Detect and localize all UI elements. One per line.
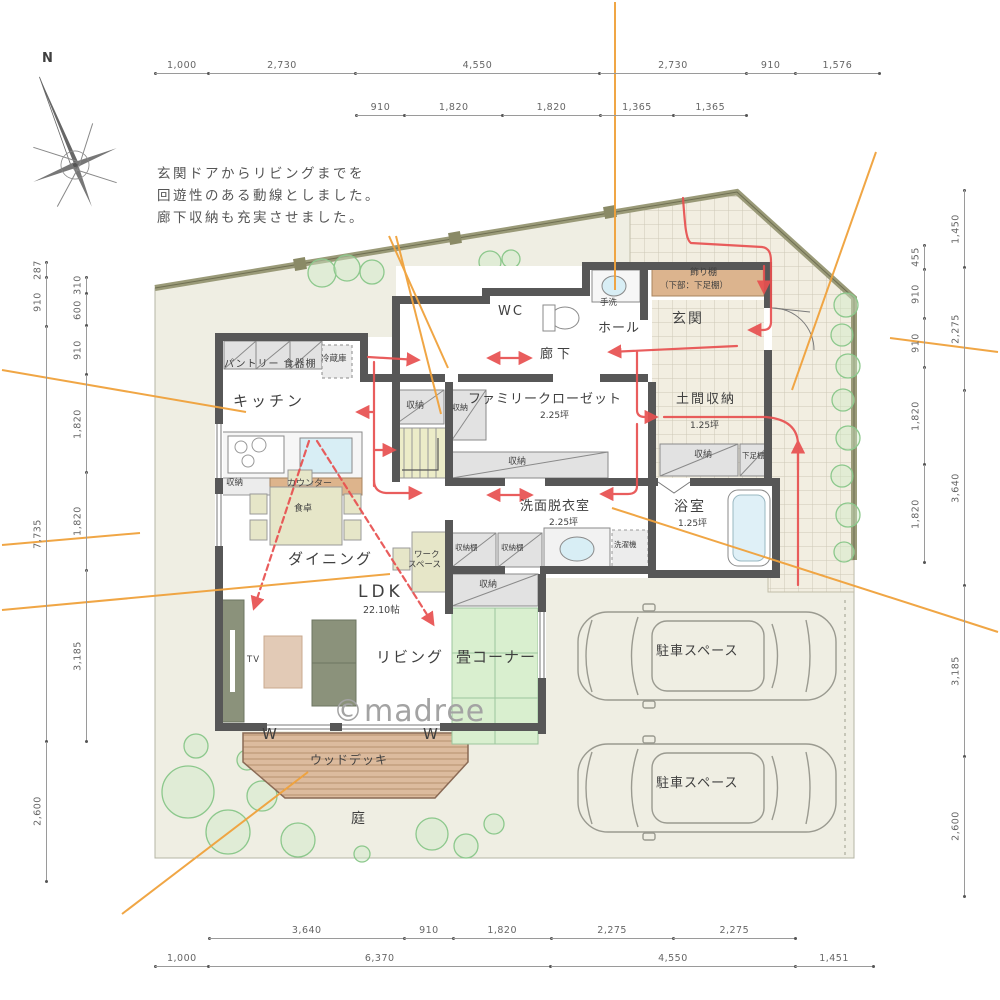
dimension-value: 2,600 [33, 797, 44, 827]
dimension-tick [85, 740, 88, 743]
room-label-table: 食卓 [294, 505, 312, 514]
dimension-value: 1,000 [155, 953, 209, 964]
dimension-segment: 910 [356, 115, 405, 116]
dimension-segment: 6,370 [209, 966, 551, 967]
room-label-ldk: LDK [358, 584, 404, 602]
dimension-value: 910 [746, 60, 795, 71]
dimension-value: 310 [73, 275, 84, 295]
room-label-counter: カウンター [287, 480, 332, 489]
room-label-bath: 浴室 [674, 500, 706, 515]
dimension-tick [923, 561, 926, 564]
room-label-shuno_fc_l: 収納 [452, 404, 468, 412]
dimension-segment: 1,820 [86, 375, 87, 473]
dimension-value: 3,640 [209, 925, 404, 936]
dimension-value: 1,820 [503, 102, 601, 113]
dimension-value: 2,275 [673, 925, 795, 936]
room-label-tatami: 畳コーナー [456, 650, 536, 666]
room-label-tv: TV [247, 656, 260, 665]
dimension-segment: 2,730 [600, 73, 747, 74]
room-label-work1: ワーク [414, 551, 440, 560]
washing-machine [612, 530, 648, 572]
room-label-park1: 駐車スペース [656, 645, 738, 659]
dimension-segment: 600 [86, 294, 87, 326]
dimension-segment: 1,000 [155, 73, 209, 74]
dimension-value: 1,820 [405, 102, 503, 113]
dimension-segment: 4,550 [551, 966, 795, 967]
dimension-value: 910 [404, 925, 453, 936]
dimension-value: 600 [73, 300, 84, 320]
dining-table [270, 487, 342, 545]
dimension-segment: 910 [924, 269, 925, 318]
floor-plan-drawing [0, 0, 1000, 1000]
room-label-doma_area: 1.25坪 [690, 422, 719, 431]
room-label-kitchen: キッチン [233, 394, 305, 410]
plan-annotation: 玄関ドアからリビングまでを 回遊性のある動線としました。 廊下収納も充実させまし… [157, 163, 381, 229]
dimension-tick [794, 937, 797, 940]
rug [264, 636, 302, 688]
dimension-segment: 455 [924, 245, 925, 269]
dimension-value: 910 [356, 102, 405, 113]
dimension-tick [963, 895, 966, 898]
room-label-senmen: 洗面脱衣室 [520, 500, 590, 514]
room-label-park2: 駐車スペース [656, 777, 738, 791]
dimension-segment: 1,000 [155, 966, 209, 967]
room-label-bath_area: 1.25坪 [678, 520, 707, 529]
dimension-value: 1,820 [911, 499, 922, 529]
dimension-segment: 1,450 [964, 190, 965, 268]
dimension-value: 2,275 [951, 314, 962, 344]
dimension-value: 1,000 [155, 60, 209, 71]
room-label-living: リビング [376, 650, 444, 666]
dimension-value: 1,820 [911, 401, 922, 431]
room-label-fridge: 冷蔵庫 [321, 355, 347, 364]
north-label: N [42, 52, 53, 66]
annotation-line: 廊下収納も充実させました。 [157, 207, 381, 229]
room-label-senmen_area: 2.25坪 [549, 519, 578, 528]
dimension-value: 910 [911, 284, 922, 304]
room-label-shuno_stair: 収納 [406, 402, 424, 411]
dimension-value: 6,370 [209, 953, 551, 964]
dimension-value: 910 [911, 333, 922, 353]
room-label-shuno_kitchen: 収納 [226, 479, 243, 488]
dimension-segment: 910 [746, 73, 795, 74]
dimension-value: 4,550 [355, 60, 599, 71]
room-label-genkan: 玄関 [672, 312, 704, 327]
room-label-deck: ウッドデッキ [310, 754, 388, 767]
room-label-getabako: 下足棚 [742, 452, 765, 460]
dimension-segment: 1,820 [924, 465, 925, 563]
dimension-value: 455 [911, 247, 922, 267]
dimension-value: 1,365 [600, 102, 673, 113]
room-label-ldk_area: 22.10帖 [363, 606, 400, 616]
dimension-segment: 1,820 [924, 367, 925, 465]
dimension-value: 7,735 [33, 519, 44, 549]
room-label-shuno_tatami: 収納 [479, 581, 497, 590]
dimension-value: 287 [33, 260, 44, 280]
compass-rose [0, 60, 134, 224]
room-label-doma: 土間収納 [676, 393, 736, 407]
dimension-value: 3,185 [73, 641, 84, 671]
room-label-tearai: 手洗 [600, 299, 617, 308]
dimension-segment: 2,275 [673, 938, 795, 939]
room-label-fc: ファミリークローゼット [468, 393, 622, 407]
room-label-garden: 庭 [351, 812, 365, 827]
room-label-pantry: パントリー 食器棚 [224, 360, 317, 371]
dimension-segment: 2,275 [551, 938, 673, 939]
dimension-value: 4,550 [551, 953, 795, 964]
dimension-segment: 4,550 [355, 73, 599, 74]
room-label-fc_area: 2.25坪 [540, 412, 569, 421]
dimension-segment: 3,185 [86, 570, 87, 741]
dimension-segment: 310 [86, 277, 87, 294]
dimension-value: 910 [33, 292, 44, 312]
dimension-tick [45, 880, 48, 883]
tv-screen [230, 630, 235, 692]
dimension-value: 1,576 [795, 60, 880, 71]
room-label-kazaridana2: （下部：下足棚） [660, 282, 728, 291]
dimension-tick [878, 72, 881, 75]
room-label-w2: W [423, 727, 438, 743]
dimension-segment: 2,730 [209, 73, 356, 74]
floor-plan: パントリー 食器棚冷蔵庫キッチン収納カウンター収納ファミリークローゼット2.25… [0, 0, 1000, 1000]
dimension-segment: 2,600 [46, 742, 47, 882]
dimension-segment: 1,365 [600, 115, 673, 116]
dimension-value: 1,820 [453, 925, 551, 936]
room-label-shelf2: 収納棚 [501, 544, 524, 552]
dimension-value: 1,365 [674, 102, 747, 113]
dimension-value: 2,600 [951, 811, 962, 841]
dimension-value: 2,275 [551, 925, 673, 936]
room-label-kazaridana: 飾り棚 [690, 269, 717, 278]
dimension-value: 2,730 [209, 60, 356, 71]
dimension-value: 2,730 [600, 60, 747, 71]
dimension-value: 3,185 [951, 656, 962, 686]
dimension-segment: 3,640 [209, 938, 404, 939]
dimension-segment: 7,735 [46, 326, 47, 741]
dimension-segment: 2,600 [964, 757, 965, 897]
dimension-segment: 1,576 [795, 73, 880, 74]
room-label-shuno_doma: 収納 [694, 451, 712, 460]
stove [228, 436, 284, 473]
dimension-segment: 910 [46, 277, 47, 326]
room-label-wc: WC [498, 305, 524, 319]
dimension-value: 1,820 [73, 506, 84, 536]
room-label-hall: ホール [598, 322, 640, 336]
room-label-washer: 洗濯機 [614, 541, 637, 549]
room-label-shuno_fc_b: 収納 [508, 458, 526, 467]
annotation-line: 玄関ドアからリビングまでを [157, 163, 381, 185]
genkan-floor [652, 300, 764, 392]
annotation-line: 回遊性のある動線としました。 [157, 185, 381, 207]
dimension-value: 1,451 [795, 953, 873, 964]
dimension-value: 3,640 [951, 473, 962, 503]
dimension-segment: 1,365 [674, 115, 747, 116]
dimension-value: 1,820 [73, 409, 84, 439]
dimension-tick [872, 965, 875, 968]
dimension-segment: 1,820 [405, 115, 503, 116]
room-label-w1: W [262, 727, 277, 743]
dimension-segment: 3,640 [964, 390, 965, 585]
dimension-segment: 910 [86, 326, 87, 375]
dimension-value: 1,450 [951, 214, 962, 244]
dimension-segment: 910 [924, 318, 925, 367]
dimension-segment: 2,275 [964, 268, 965, 390]
room-label-work2: スペース [408, 561, 441, 570]
dimension-value: 910 [73, 340, 84, 360]
room-label-shelf1: 収納棚 [455, 544, 478, 552]
room-label-rouka: 廊下 [540, 348, 574, 362]
watermark: ©madree [333, 694, 485, 729]
dimension-segment: 3,185 [964, 586, 965, 757]
dimension-segment: 1,820 [453, 938, 551, 939]
dimension-segment: 1,820 [503, 115, 601, 116]
dimension-segment: 910 [404, 938, 453, 939]
dimension-segment: 1,451 [795, 966, 873, 967]
dimension-segment: 1,820 [86, 472, 87, 570]
room-label-dining: ダイニング [288, 552, 373, 568]
